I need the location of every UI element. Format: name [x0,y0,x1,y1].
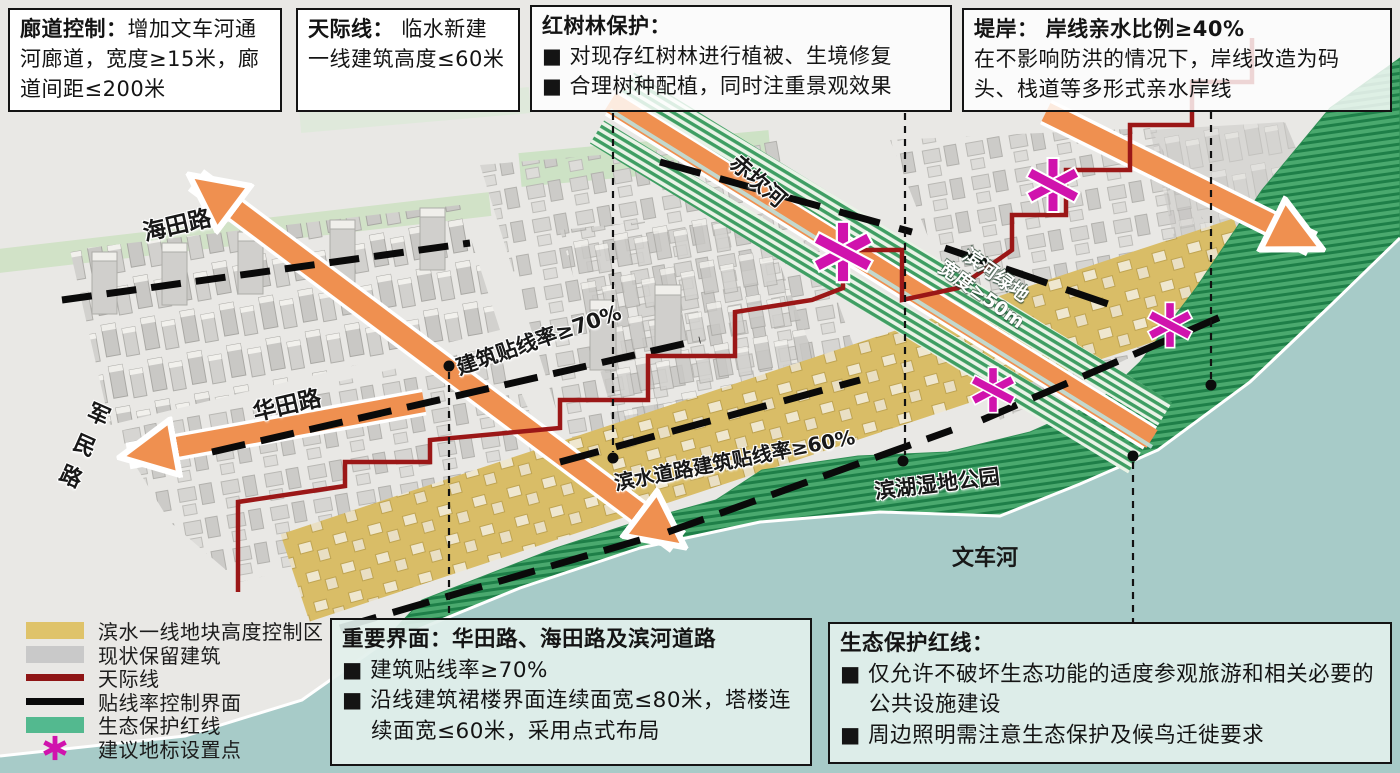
callout-bullet: ■ 仅允许不破坏生态功能的适度参观旅游和相关必要的公共设施建设 [840,660,1380,721]
callout-subtitle: 岸线亲水比例≥40% [1046,17,1245,41]
callout-title: 堤岸： [974,17,1039,41]
legend: 滨水一线地块高度控制区 现状保留建筑 天际线 贴线率控制界面 生态保护红线 [26,619,324,760]
callout-title: 重要界面： [342,627,452,652]
legend-label: 建议地标设置点 [98,734,242,763]
callout-bullet: ■ 建筑贴线率≥70% [342,656,800,687]
callout-bullet: ■ 合理树种配植，同时注重景观效果 [542,72,940,102]
callout-body: 在不影响防洪的情况下，岸线改造为码头、栈道等多形式亲水岸线 [974,45,1380,105]
tan-swatch-icon [26,622,84,639]
planning-diagram: 海田路 军民路 华田路 赤坎河 滨河绿地 宽度≥50m 建筑贴线率≥70% 滨水… [0,0,1400,773]
legend-item-landmark-point: 建议地标设置点 [26,737,324,761]
callout-bullet: ■ 对现存红树林进行植被、生境修复 [542,42,940,72]
label-wenche-river: 文车河 [952,540,1018,572]
asterisk-icon [26,737,84,760]
callout-title: 廊道控制： [20,17,128,41]
black-line-icon [26,698,84,705]
callout-title: 天际线： [308,17,394,41]
callout-mangrove-protection: 红树林保护： ■ 对现存红树林进行植被、生境修复 ■ 合理树种配植，同时注重景观… [530,5,952,112]
callout-title: 红树林保护： [542,12,940,42]
callout-skyline: 天际线： 临水新建一线建筑高度≤60米 [296,8,520,112]
gray-swatch-icon [26,646,84,663]
callout-bullet: ■ 沿线建筑裙楼界面连续面宽≤80米，塔楼连续面宽≤60米，采用点式布局 [342,686,800,747]
callout-bullet: ■ 周边照明需注意生态保护及候鸟迁徙要求 [840,721,1380,752]
green-swatch-icon [26,717,84,733]
callout-corridor-control: 廊道控制：增加文车河通河廊道，宽度≥15米，廊道间距≤200米 [8,8,282,112]
callout-important-interface: 重要界面：华田路、海田路及滨河道路 ■ 建筑贴线率≥70% ■ 沿线建筑裙楼界面… [330,618,812,766]
callout-title: 生态保护红线： [840,629,1380,660]
red-line-icon [26,674,84,681]
legend-item-retained-buildings: 现状保留建筑 [26,643,324,667]
callout-subtitle: 华田路、海田路及滨河道路 [452,627,716,652]
callout-eco-redline: 生态保护红线： ■ 仅允许不破坏生态功能的适度参观旅游和相关必要的公共设施建设 … [828,622,1392,764]
callout-embankment: 堤岸： 岸线亲水比例≥40% 在不影响防洪的情况下，岸线改造为码头、栈道等多形式… [962,8,1392,112]
